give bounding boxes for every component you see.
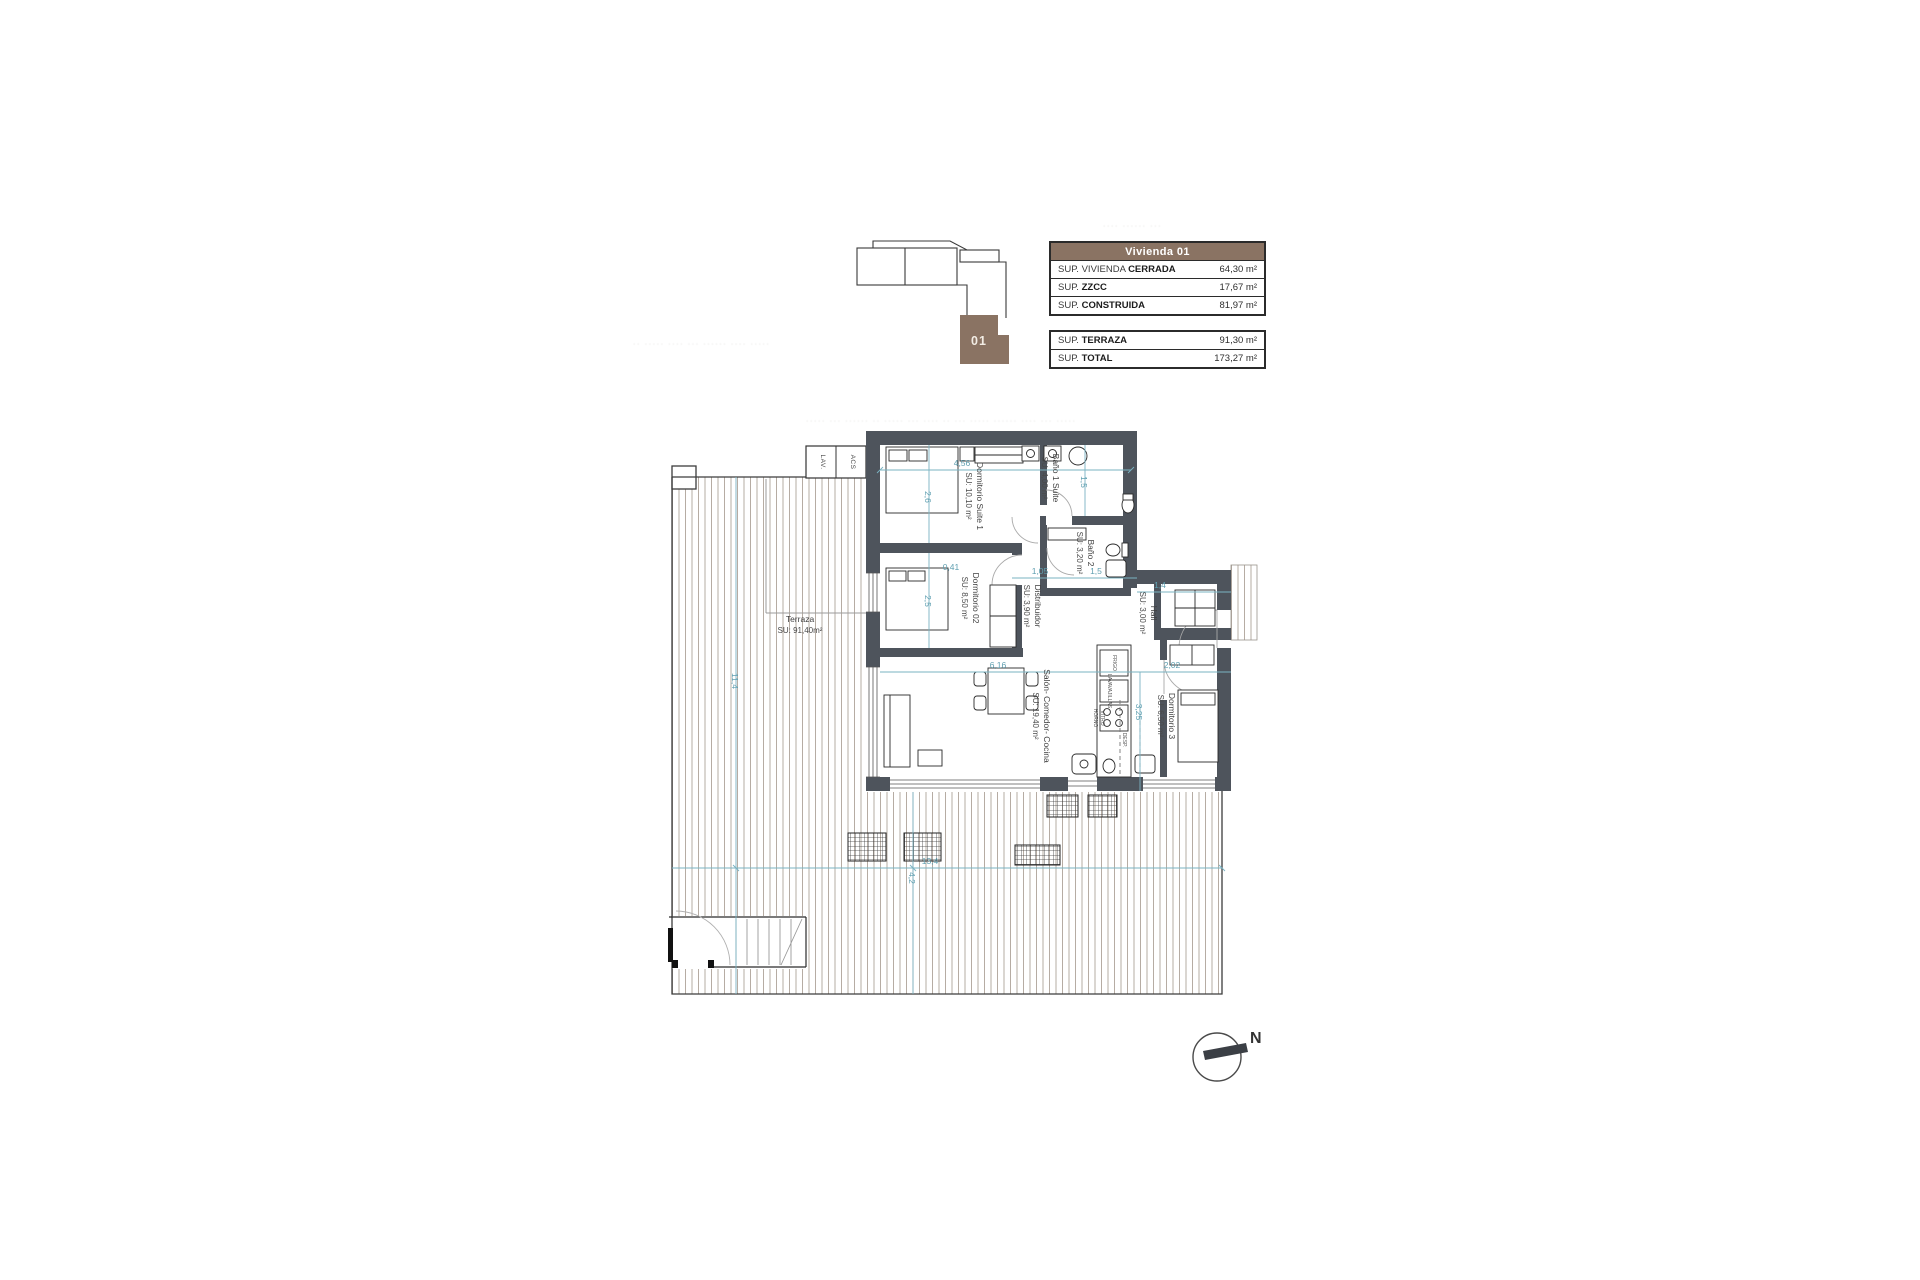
svg-text:SU: 3,20 m²: SU: 3,20 m² [1075, 532, 1084, 575]
room-label-dormitorio-02: Dormitorio 02 SU: 8,50 m² [960, 572, 981, 623]
svg-text:3,25: 3,25 [1134, 704, 1144, 721]
closet-label-lav: LAV. [819, 454, 826, 469]
svg-text:SU: 3,00 m²: SU: 3,00 m² [1138, 592, 1147, 635]
svg-text:VITRO: VITRO [1099, 710, 1105, 725]
svg-text:Terraza: Terraza [786, 614, 815, 624]
svg-text:4,56: 4,56 [954, 458, 971, 468]
table-row: SUP. TERRAZA 91,30 m² [1051, 332, 1264, 349]
room-label-distribuidor: Distribuidor SU: 3,90 m² [1022, 585, 1043, 628]
svg-text:Dormitorio Suite 1: Dormitorio Suite 1 [975, 462, 985, 530]
svg-text:SU: 8,50 m²: SU: 8,50 m² [960, 577, 969, 620]
area-table-vivienda: Vivienda 01 SUP. VIVIENDA CERRADA 64,30 … [1049, 241, 1266, 316]
svg-text:Distribuidor: Distribuidor [1033, 585, 1043, 628]
svg-text:SU: 6,50 m²: SU: 6,50 m² [1156, 695, 1165, 738]
svg-text:Dormitorio 02: Dormitorio 02 [971, 572, 981, 623]
svg-text:1,5: 1,5 [1079, 476, 1089, 488]
svg-text:6,16: 6,16 [990, 660, 1007, 670]
svg-text:4,2: 4,2 [907, 872, 917, 884]
svg-text:HORNO: HORNO [1092, 709, 1098, 728]
svg-text:Baño 1 Suite: Baño 1 Suite [1051, 454, 1061, 503]
area-table-totals: SUP. TERRAZA 91,30 m² SUP. TOTAL 173,27 … [1049, 330, 1266, 369]
closet-label-acs: ACS [849, 455, 856, 470]
area-table-header: Vivienda 01 [1051, 243, 1264, 260]
svg-text:LAVAVAJILLAS: LAVAVAJILLAS [1106, 674, 1112, 709]
table-row: SUP. TOTAL 173,27 m² [1051, 349, 1264, 367]
svg-text:2,02: 2,02 [1164, 660, 1181, 670]
table-row: SUP. VIVIENDA CERRADA 64,30 m² [1051, 260, 1264, 278]
svg-text:SU: 19,40 m²: SU: 19,40 m² [1031, 692, 1040, 739]
key-plan-unit-label: 01 [971, 334, 987, 348]
area-value: 173,27 m² [1214, 353, 1257, 364]
svg-text:SU: 10,10 m²: SU: 10,10 m² [964, 472, 973, 519]
svg-text:SU: 3,90 m²: SU: 3,90 m² [1022, 585, 1031, 628]
north-label: N [1250, 1030, 1262, 1047]
svg-text:Hall: Hall [1149, 606, 1159, 621]
svg-text:1,4: 1,4 [1154, 580, 1166, 590]
table-row: SUP. ZZCC 17,67 m² [1051, 278, 1264, 296]
svg-text:Dormitorio 3: Dormitorio 3 [1167, 693, 1177, 740]
svg-text:SU: 91,40m²: SU: 91,40m² [778, 626, 823, 635]
room-label-dormitorio-suite-1: Dormitorio Suite 1 SU: 10,10 m² [964, 462, 985, 530]
svg-text:SU: 4,00 m²: SU: 4,00 m² [1040, 457, 1049, 500]
door-jamb [668, 928, 673, 962]
svg-text:1,05: 1,05 [1032, 566, 1049, 576]
svg-text:FRIGO: FRIGO [1111, 655, 1117, 671]
area-value: 17,67 m² [1220, 282, 1258, 293]
area-value: 91,30 m² [1220, 335, 1258, 346]
svg-text:2,6: 2,6 [923, 491, 933, 503]
area-value: 81,97 m² [1220, 300, 1258, 311]
svg-text:Baño 2: Baño 2 [1086, 540, 1096, 567]
svg-text:DESP.: DESP. [1121, 733, 1127, 747]
svg-text:Salón- Comedor- Cocina: Salón- Comedor- Cocina [1042, 669, 1052, 763]
north-arrow: N [1193, 1030, 1262, 1081]
door-jamb [672, 960, 678, 968]
svg-text:11,4: 11,4 [730, 673, 740, 689]
table-row: SUP. CONSTRUIDA 81,97 m² [1051, 296, 1264, 314]
area-value: 64,30 m² [1220, 264, 1258, 275]
key-plan: 01 [857, 241, 1009, 364]
svg-text:13,4: 13,4 [922, 856, 939, 866]
floor-plan-canvas: LAV. ACS [0, 0, 1920, 1280]
svg-text:2,5: 2,5 [923, 595, 933, 607]
svg-text:1,5: 1,5 [1090, 566, 1102, 576]
utility-closets: LAV. ACS [806, 446, 866, 478]
svg-text:0,41: 0,41 [943, 562, 960, 572]
door-jamb [708, 960, 714, 968]
